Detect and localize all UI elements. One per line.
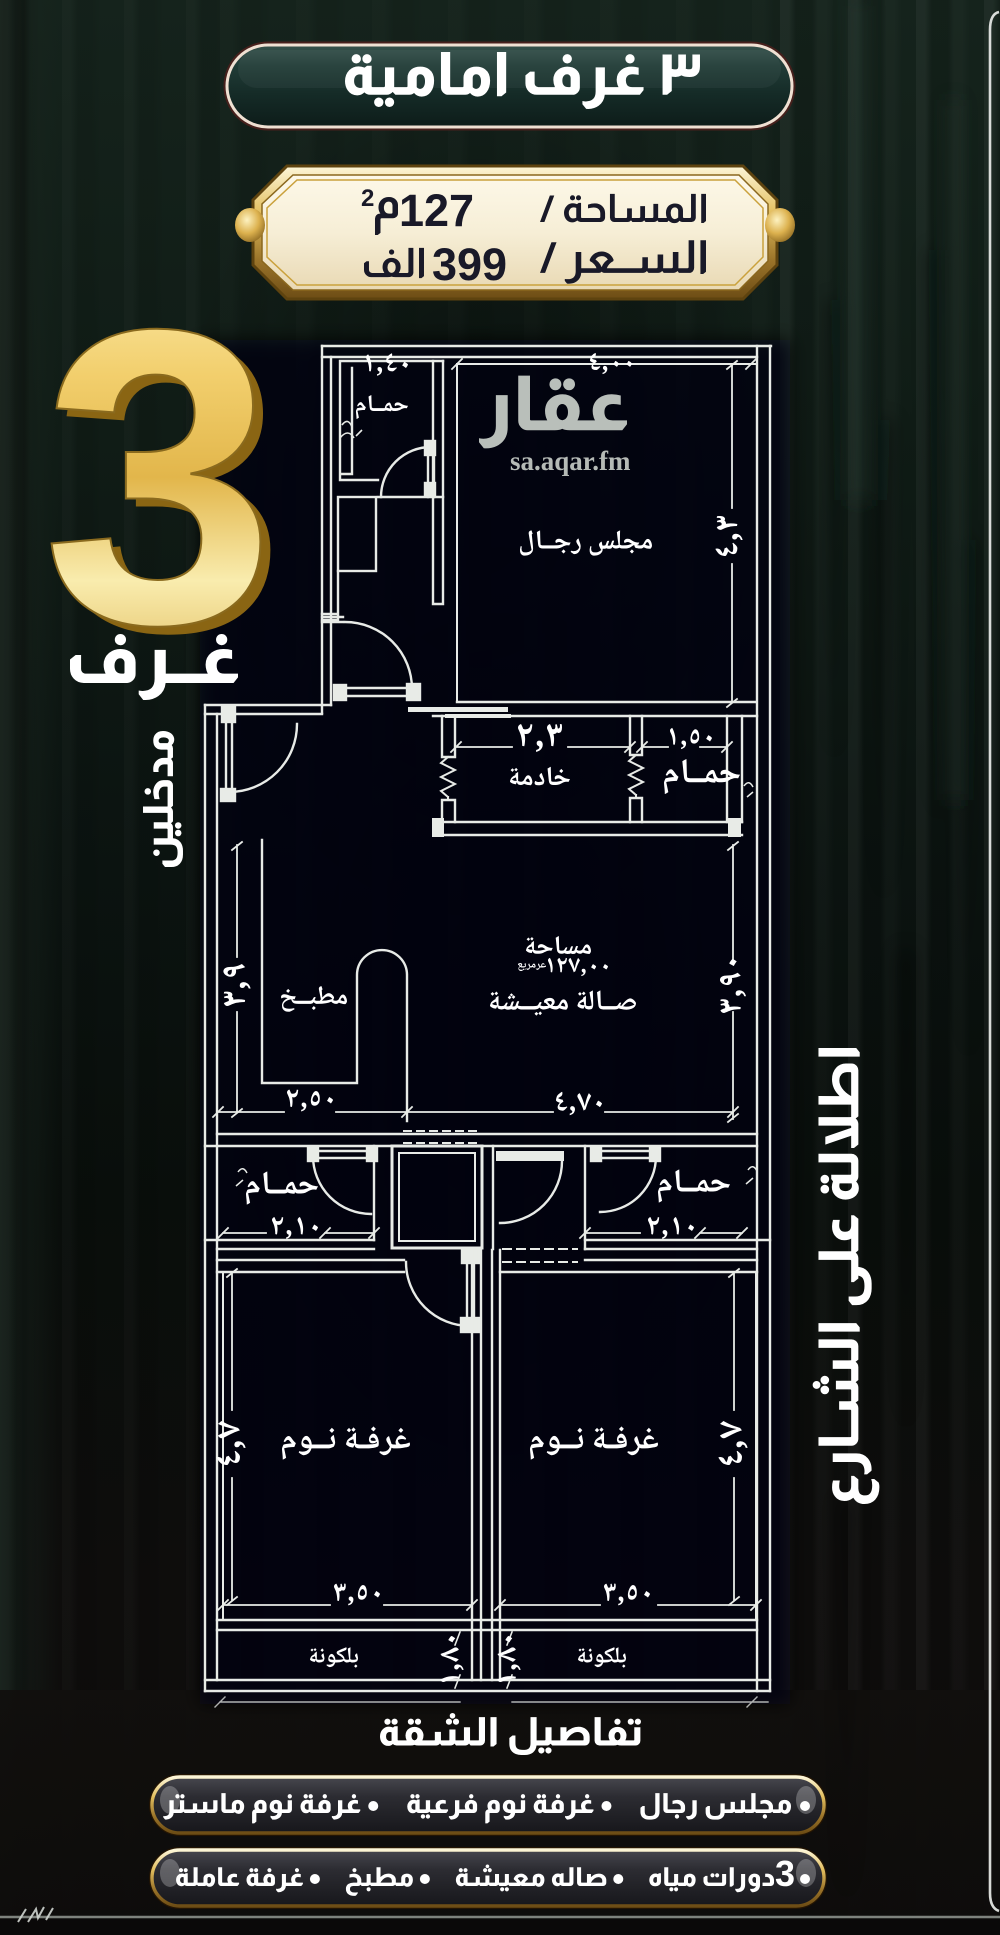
svg-text:sa.aqar.fm: sa.aqar.fm (510, 446, 631, 476)
svg-text:3: 3 (775, 1853, 795, 1894)
svg-text:3: 3 (42, 243, 276, 712)
svg-text:2: 2 (361, 185, 374, 212)
svg-text:127: 127 (399, 185, 474, 236)
svg-text:399: 399 (432, 239, 507, 290)
